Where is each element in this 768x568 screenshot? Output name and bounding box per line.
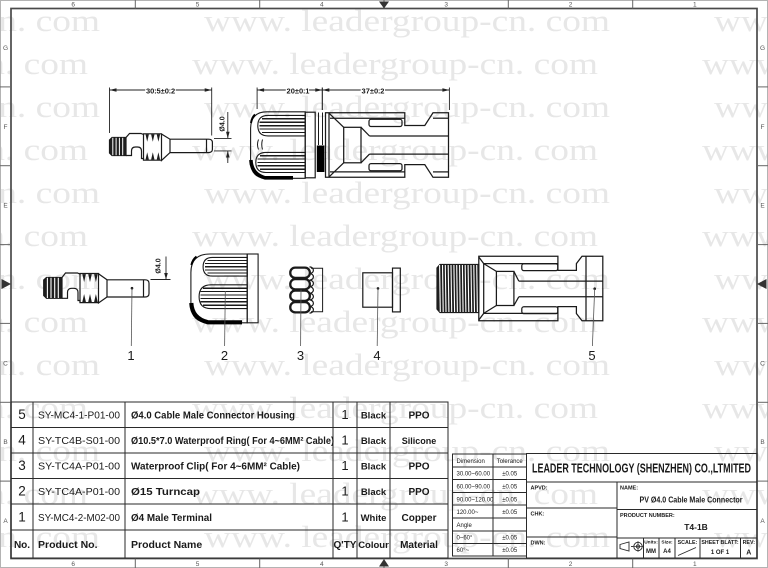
- svg-text:Black: Black: [361, 411, 387, 422]
- svg-text:No.: No.: [14, 540, 30, 551]
- svg-text:1: 1: [693, 2, 697, 9]
- svg-text:2: 2: [18, 484, 26, 499]
- svg-text:Q'TY: Q'TY: [334, 540, 357, 551]
- svg-text:3: 3: [444, 561, 448, 568]
- svg-text:www. leadergroup-cn. com: www. leadergroup-cn. com: [0, 132, 88, 167]
- svg-text:Ø4.0: Ø4.0: [156, 258, 163, 273]
- svg-text:E: E: [3, 203, 8, 210]
- svg-text:A: A: [3, 518, 8, 525]
- svg-text:1: 1: [341, 484, 348, 499]
- svg-text:1: 1: [127, 348, 134, 363]
- svg-text:A4: A4: [663, 549, 671, 555]
- svg-text:Copper: Copper: [402, 513, 437, 524]
- svg-text:Ø15 Turncap: Ø15 Turncap: [131, 486, 200, 498]
- svg-text:E: E: [760, 203, 765, 210]
- svg-text:Material: Material: [400, 540, 438, 551]
- svg-text:±0.05: ±0.05: [502, 472, 518, 478]
- svg-text:PPO: PPO: [408, 411, 429, 422]
- svg-text:SY-TC4B-S01-00: SY-TC4B-S01-00: [38, 435, 120, 447]
- svg-text:Ø4.0 Cable Male Connector Hous: Ø4.0 Cable Male Connector Housing: [131, 410, 295, 422]
- svg-text:SHEET BLATT:: SHEET BLATT:: [701, 540, 739, 546]
- svg-text:1: 1: [341, 407, 348, 422]
- svg-text:www. leadergroup-cn. com: www. leadergroup-cn. com: [702, 132, 768, 167]
- svg-text:www. leadergroup-cn. com: www. leadergroup-cn. com: [0, 46, 88, 81]
- svg-text:F: F: [761, 124, 765, 131]
- svg-text:1: 1: [341, 433, 348, 448]
- svg-text:1 OF 1: 1 OF 1: [711, 550, 730, 556]
- svg-text:5: 5: [18, 407, 26, 422]
- svg-text:www. leadergroup-cn. com: www. leadergroup-cn. com: [702, 46, 768, 81]
- svg-text:www. leadergroup-cn. com: www. leadergroup-cn. com: [192, 304, 598, 339]
- svg-text:5: 5: [196, 2, 200, 9]
- svg-text:C: C: [3, 360, 8, 367]
- svg-text:PRODUCT NUMBER:: PRODUCT NUMBER:: [620, 513, 675, 519]
- svg-text:4: 4: [320, 2, 324, 9]
- svg-text:120.00~: 120.00~: [457, 510, 479, 516]
- svg-text:1: 1: [18, 509, 26, 524]
- svg-text:37±0.2: 37±0.2: [362, 86, 385, 95]
- svg-text:Product Name: Product Name: [131, 539, 202, 551]
- svg-text:±0.05: ±0.05: [502, 536, 518, 542]
- svg-text:www. leadergroup-cn. com: www. leadergroup-cn. com: [192, 46, 598, 81]
- svg-text:Tolerance: Tolerance: [497, 459, 524, 465]
- svg-text:60°~: 60°~: [457, 548, 470, 554]
- svg-text:LEADER TECHNOLOGY (SHENZHEN): LEADER TECHNOLOGY (SHENZHEN) CO.,LTMITED: [532, 461, 751, 475]
- svg-text:www. leadergroup-cn. com: www. leadergroup-cn. com: [702, 390, 768, 425]
- svg-text:CHK:: CHK:: [531, 512, 545, 518]
- svg-text:www. leadergroup-cn. com: www. leadergroup-cn. com: [0, 347, 100, 382]
- svg-text:5: 5: [196, 561, 200, 568]
- svg-text:Size:: Size:: [661, 540, 673, 546]
- svg-text:DWN:: DWN:: [531, 541, 546, 547]
- svg-text:www. leadergroup-cn. com: www. leadergroup-cn. com: [192, 132, 598, 167]
- svg-text:5: 5: [588, 348, 595, 363]
- svg-text:Black: Black: [361, 487, 387, 498]
- svg-text:Silicone: Silicone: [402, 436, 437, 446]
- svg-text:APVD:: APVD:: [531, 486, 548, 492]
- svg-text:Black: Black: [361, 436, 387, 447]
- svg-text:3: 3: [297, 348, 304, 363]
- svg-text:www. leadergroup-cn. com: www. leadergroup-cn. com: [192, 218, 598, 253]
- svg-text:www. leadergroup-cn. com: www. leadergroup-cn. com: [192, 476, 598, 511]
- svg-text:C: C: [760, 360, 765, 367]
- svg-text:Ø4 Male Terminal: Ø4 Male Terminal: [131, 512, 212, 524]
- svg-text:SY-TC4A-P01-00: SY-TC4A-P01-00: [38, 461, 120, 473]
- svg-text:B: B: [3, 439, 7, 446]
- svg-text:PPO: PPO: [408, 487, 429, 498]
- svg-text:PV Ø4.0 Cable Male Connector: PV Ø4.0 Cable Male Connector: [640, 495, 744, 505]
- svg-text:±0.05: ±0.05: [502, 548, 518, 554]
- svg-text:Product No.: Product No.: [38, 539, 98, 551]
- svg-text:Dimension: Dimension: [457, 459, 485, 465]
- svg-text:www. leadergroup-cn. com: www. leadergroup-cn. com: [0, 304, 88, 339]
- svg-text:Units:: Units:: [644, 540, 658, 546]
- svg-text:Angle: Angle: [457, 523, 473, 529]
- svg-text:1: 1: [693, 561, 697, 568]
- svg-text:60.00~90.00: 60.00~90.00: [457, 485, 491, 491]
- svg-text:A: A: [760, 518, 765, 525]
- svg-text:MM: MM: [646, 549, 656, 555]
- svg-text:B: B: [760, 439, 764, 446]
- svg-text:2: 2: [221, 348, 228, 363]
- svg-text:NAME:: NAME:: [620, 486, 638, 492]
- svg-text:SY-MC4-1-P01-00: SY-MC4-1-P01-00: [38, 410, 120, 422]
- svg-text:20±0.1: 20±0.1: [287, 86, 310, 95]
- svg-text:0~60°: 0~60°: [457, 536, 474, 542]
- svg-text:3: 3: [18, 458, 26, 473]
- svg-text:www. leadergroup-cn. com: www. leadergroup-cn. com: [714, 89, 768, 124]
- svg-text:SY-TC4A-P01-00: SY-TC4A-P01-00: [38, 486, 120, 498]
- svg-text:www. leadergroup-cn. com: www. leadergroup-cn. com: [702, 218, 768, 253]
- svg-text:1: 1: [341, 509, 348, 524]
- svg-text:PPO: PPO: [408, 462, 429, 473]
- svg-text:2: 2: [569, 561, 573, 568]
- svg-text:www. leadergroup-cn. com: www. leadergroup-cn. com: [204, 261, 610, 296]
- svg-text:90.00~120.00: 90.00~120.00: [457, 497, 495, 503]
- svg-text:4: 4: [373, 348, 380, 363]
- svg-text:Waterproof Clip( For 4~6MM² Ca: Waterproof Clip( For 4~6MM² Cable): [131, 461, 300, 473]
- svg-text:A: A: [746, 550, 751, 557]
- svg-text:±0.05: ±0.05: [502, 485, 518, 491]
- svg-text:www. leadergroup-cn. com: www. leadergroup-cn. com: [204, 347, 610, 382]
- svg-text:Black: Black: [361, 462, 387, 473]
- svg-text:www. leadergroup-cn. com: www. leadergroup-cn. com: [702, 304, 768, 339]
- svg-text:1: 1: [341, 458, 348, 473]
- svg-text:www. leadergroup-cn. com: www. leadergroup-cn. com: [0, 218, 88, 253]
- svg-text:F: F: [4, 124, 8, 131]
- svg-text:www. leadergroup-cn. com: www. leadergroup-cn. com: [0, 89, 100, 124]
- svg-text:Ø10.5*7.0 Waterproof Ring( For: Ø10.5*7.0 Waterproof Ring( For 4~6MM² Ca…: [131, 435, 334, 447]
- svg-text:White: White: [361, 513, 387, 524]
- svg-text:4: 4: [18, 433, 26, 448]
- svg-text:±0.05: ±0.05: [502, 510, 518, 516]
- svg-text:G: G: [3, 45, 8, 52]
- svg-text:T4-1B: T4-1B: [684, 522, 708, 532]
- svg-text:3: 3: [444, 2, 448, 9]
- svg-text:www. leadergroup-cn. com: www. leadergroup-cn. com: [0, 175, 100, 210]
- svg-text:4: 4: [320, 561, 324, 568]
- svg-text:Ø4.0: Ø4.0: [220, 116, 227, 131]
- svg-text:REV:: REV:: [743, 540, 756, 546]
- svg-text:30.5±0.2: 30.5±0.2: [146, 86, 175, 95]
- svg-text:2: 2: [569, 2, 573, 9]
- svg-text:30.00~60.00: 30.00~60.00: [457, 472, 491, 478]
- svg-text:6: 6: [71, 2, 75, 9]
- svg-text:G: G: [760, 45, 765, 52]
- svg-text:www. leadergroup-cn. com: www. leadergroup-cn. com: [714, 261, 768, 296]
- svg-text:SY-MC4-2-M02-00: SY-MC4-2-M02-00: [38, 512, 120, 524]
- svg-text:Colour: Colour: [358, 540, 389, 551]
- svg-text:SCALE:: SCALE:: [678, 540, 698, 546]
- svg-text:±0.05: ±0.05: [502, 497, 518, 503]
- svg-text:6: 6: [71, 561, 75, 568]
- svg-text:www. leadergroup-cn. com: www. leadergroup-cn. com: [204, 175, 610, 210]
